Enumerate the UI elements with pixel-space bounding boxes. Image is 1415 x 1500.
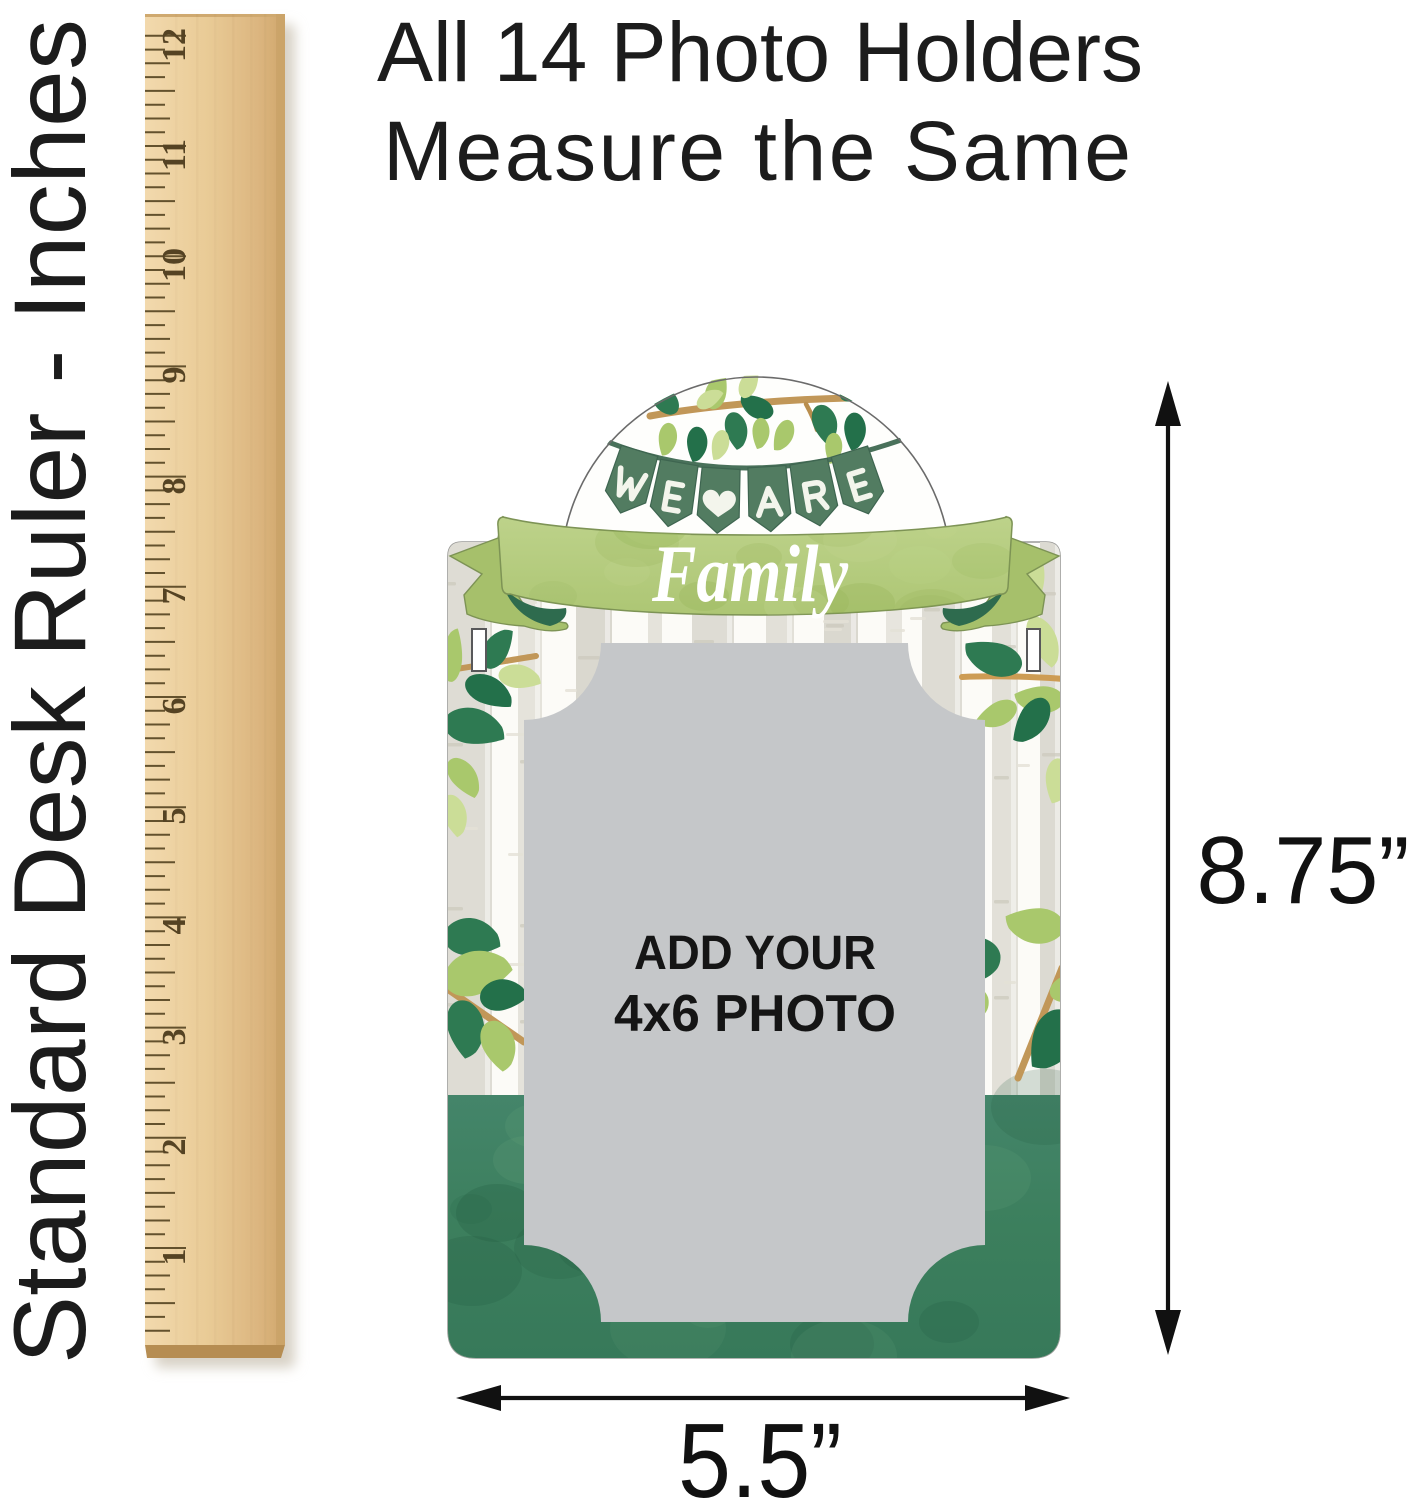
svg-text:6: 6 [156,698,193,715]
svg-text:Measure the Same: Measure the Same [383,104,1131,198]
svg-text:4x6 PHOTO: 4x6 PHOTO [614,985,896,1043]
svg-text:5: 5 [156,808,193,825]
svg-text:2: 2 [156,1139,193,1156]
svg-text:ADD YOUR: ADD YOUR [634,927,876,980]
svg-text:1: 1 [156,1249,193,1266]
svg-text:4: 4 [156,918,193,935]
svg-text:9: 9 [156,367,193,384]
svg-text:7: 7 [156,588,193,605]
svg-text:Standard Desk Ruler - Inches: Standard Desk Ruler - Inches [0,19,107,1364]
svg-text:10: 10 [156,248,193,282]
svg-text:All 14 Photo Holders: All 14 Photo Holders [377,5,1143,99]
svg-text:8: 8 [156,478,193,495]
svg-text:8.75”: 8.75” [1197,817,1410,924]
svg-text:12: 12 [156,28,193,62]
svg-text:Family: Family [651,528,848,619]
svg-text:11: 11 [156,139,193,171]
svg-text:5.5”: 5.5” [678,1402,842,1500]
svg-text:3: 3 [156,1029,193,1046]
